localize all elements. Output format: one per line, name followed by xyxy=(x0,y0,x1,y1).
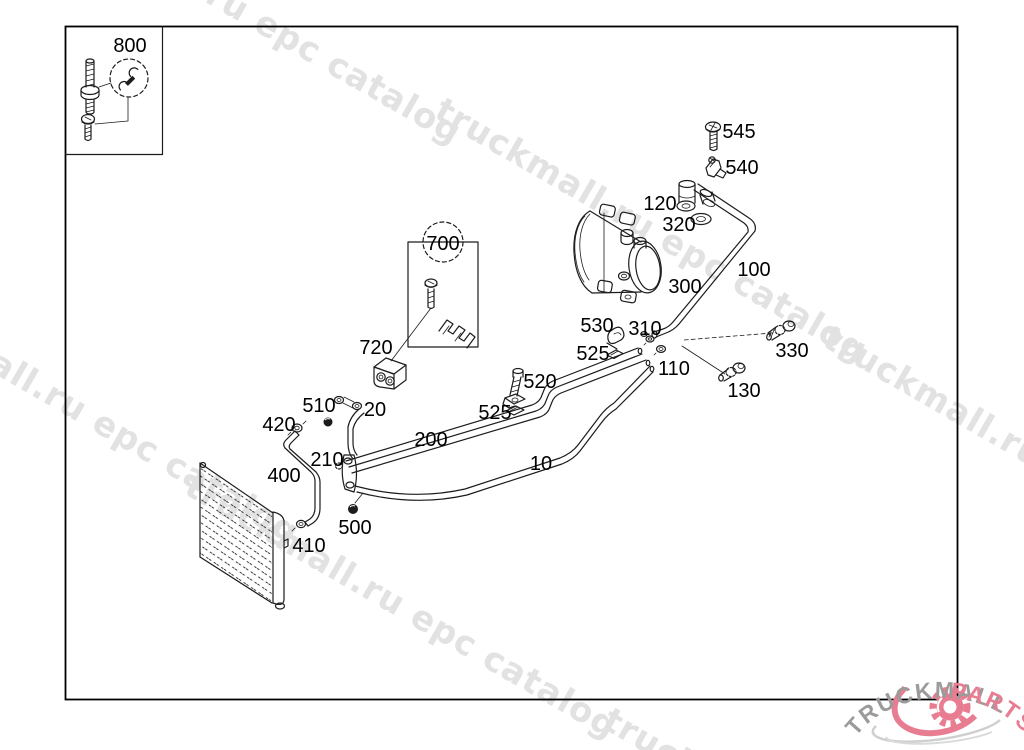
washer-120 xyxy=(677,201,695,211)
part-label-210[interactable]: 210 xyxy=(310,449,343,471)
compressor xyxy=(574,204,665,304)
wrench-icon xyxy=(119,68,138,90)
part-label-525[interactable]: 525 xyxy=(576,343,609,365)
part-label-300[interactable]: 300 xyxy=(668,276,701,298)
part-label-100[interactable]: 100 xyxy=(737,259,770,281)
part-label-10[interactable]: 10 xyxy=(530,453,552,475)
part-label-110[interactable]: 110 xyxy=(658,358,690,380)
part-label-420[interactable]: 420 xyxy=(262,414,295,436)
parts-diagram-page: truckmall.ru epc catalog truckmall.ru ep… xyxy=(0,0,1024,750)
part-label-130[interactable]: 130 xyxy=(727,380,760,402)
part-label-700[interactable]: 700 xyxy=(426,233,459,255)
part-label-500[interactable]: 500 xyxy=(338,517,371,539)
pipe-200-10-bundle xyxy=(346,348,654,500)
bolt-545 xyxy=(706,122,721,151)
part-label-200[interactable]: 200 xyxy=(414,429,447,451)
part-label-720[interactable]: 720 xyxy=(359,337,392,359)
bolt-130 xyxy=(682,346,745,381)
part-label-310[interactable]: 310 xyxy=(628,318,661,340)
part-720-bracket xyxy=(374,358,406,389)
part-label-520[interactable]: 520 xyxy=(523,371,556,393)
part-label-525b[interactable]: 525 xyxy=(478,402,511,424)
part-label-800[interactable]: 800 xyxy=(113,35,146,57)
bolt-330 xyxy=(684,321,795,340)
clamp-540 xyxy=(706,157,726,178)
wrench-circle xyxy=(110,59,148,97)
part-label-545[interactable]: 545 xyxy=(722,121,755,143)
part-label-410[interactable]: 410 xyxy=(292,535,325,557)
part-label-400[interactable]: 400 xyxy=(267,465,300,487)
part-label-510[interactable]: 510 xyxy=(302,395,335,417)
tool-kit-800 xyxy=(81,59,148,141)
part-label-320[interactable]: 320 xyxy=(662,214,695,236)
part-label-20[interactable]: 20 xyxy=(364,399,386,421)
part-label-330[interactable]: 330 xyxy=(775,340,808,362)
part-label-120[interactable]: 120 xyxy=(643,193,676,215)
part-label-540[interactable]: 540 xyxy=(725,157,758,179)
part-label-530[interactable]: 530 xyxy=(580,315,613,337)
truckmall-logo: TRUCKMALL PARTS xyxy=(840,677,1024,746)
diagram-frame xyxy=(66,27,958,700)
